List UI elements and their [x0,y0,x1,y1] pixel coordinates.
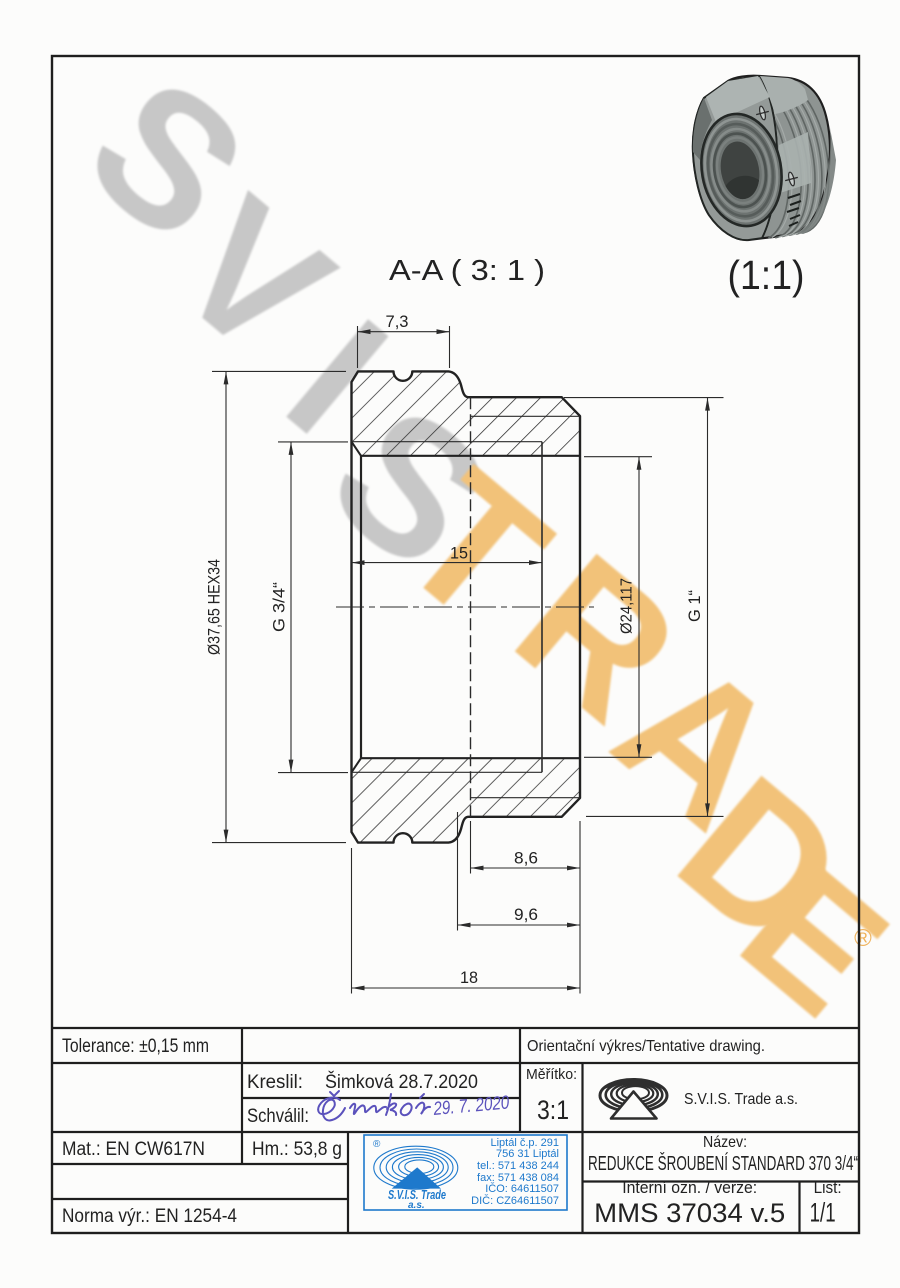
svg-text:8,6: 8,6 [514,849,538,868]
svg-text:Kreslil:: Kreslil: [247,1072,303,1093]
svg-text:3:1: 3:1 [537,1095,569,1125]
svg-text:Tolerance: ±0,15 mm: Tolerance: ±0,15 mm [62,1036,209,1057]
svg-text:Šimková 28.7.2020: Šimková 28.7.2020 [325,1071,478,1093]
svg-text:Ø37,65 HEX34: Ø37,65 HEX34 [205,559,224,655]
svg-text:756 31 Liptál: 756 31 Liptál [496,1148,559,1160]
svg-text:9,6: 9,6 [514,905,538,924]
svg-text:IČO: 64611507: IČO: 64611507 [485,1182,559,1195]
svg-text:tel.: 571 438 244: tel.: 571 438 244 [477,1160,559,1172]
svg-text:(1:1): (1:1) [728,252,805,298]
svg-text:15: 15 [450,544,468,563]
svg-text:G 3/4“: G 3/4“ [270,582,289,632]
svg-text:Ø24,117: Ø24,117 [619,578,636,634]
svg-text:MMS 37034 v.5: MMS 37034 v.5 [594,1198,785,1228]
svg-text:®: ® [854,925,872,952]
svg-text:List:: List: [814,1178,842,1197]
svg-text:Mat.: EN CW617N: Mat.: EN CW617N [62,1139,205,1160]
svg-text:Schválil:: Schválil: [247,1106,309,1127]
svg-text:7,3: 7,3 [386,312,409,331]
svg-text:Norma výr.: EN 1254-4: Norma výr.: EN 1254-4 [62,1206,237,1227]
svg-text:G 1“: G 1“ [685,590,704,622]
svg-text:DIČ: CZ64611507: DIČ: CZ64611507 [471,1194,559,1207]
svg-text:Orientační výkres/Tentative dr: Orientační výkres/Tentative drawing. [527,1038,765,1055]
svg-text:Interní ozn. / verze:: Interní ozn. / verze: [622,1178,757,1197]
svg-text:a.s.: a.s. [408,1200,425,1211]
svg-text:Název:: Název: [703,1134,747,1151]
svg-text:Hm.: 53,8 g: Hm.: 53,8 g [252,1139,342,1160]
svg-text:®: ® [373,1139,381,1150]
svg-text:REDUKCE ŠROUBENÍ STANDARD 370: REDUKCE ŠROUBENÍ STANDARD 370 3/4“ [588,1152,858,1175]
svg-text:18: 18 [460,968,478,987]
svg-text:A-A ( 3: 1 ): A-A ( 3: 1 ) [389,255,545,287]
svg-text:1/1: 1/1 [810,1198,836,1228]
svg-text:Měřítko:: Měřítko: [526,1066,577,1083]
svg-text:S.V.I.S. Trade a.s.: S.V.I.S. Trade a.s. [684,1091,798,1108]
